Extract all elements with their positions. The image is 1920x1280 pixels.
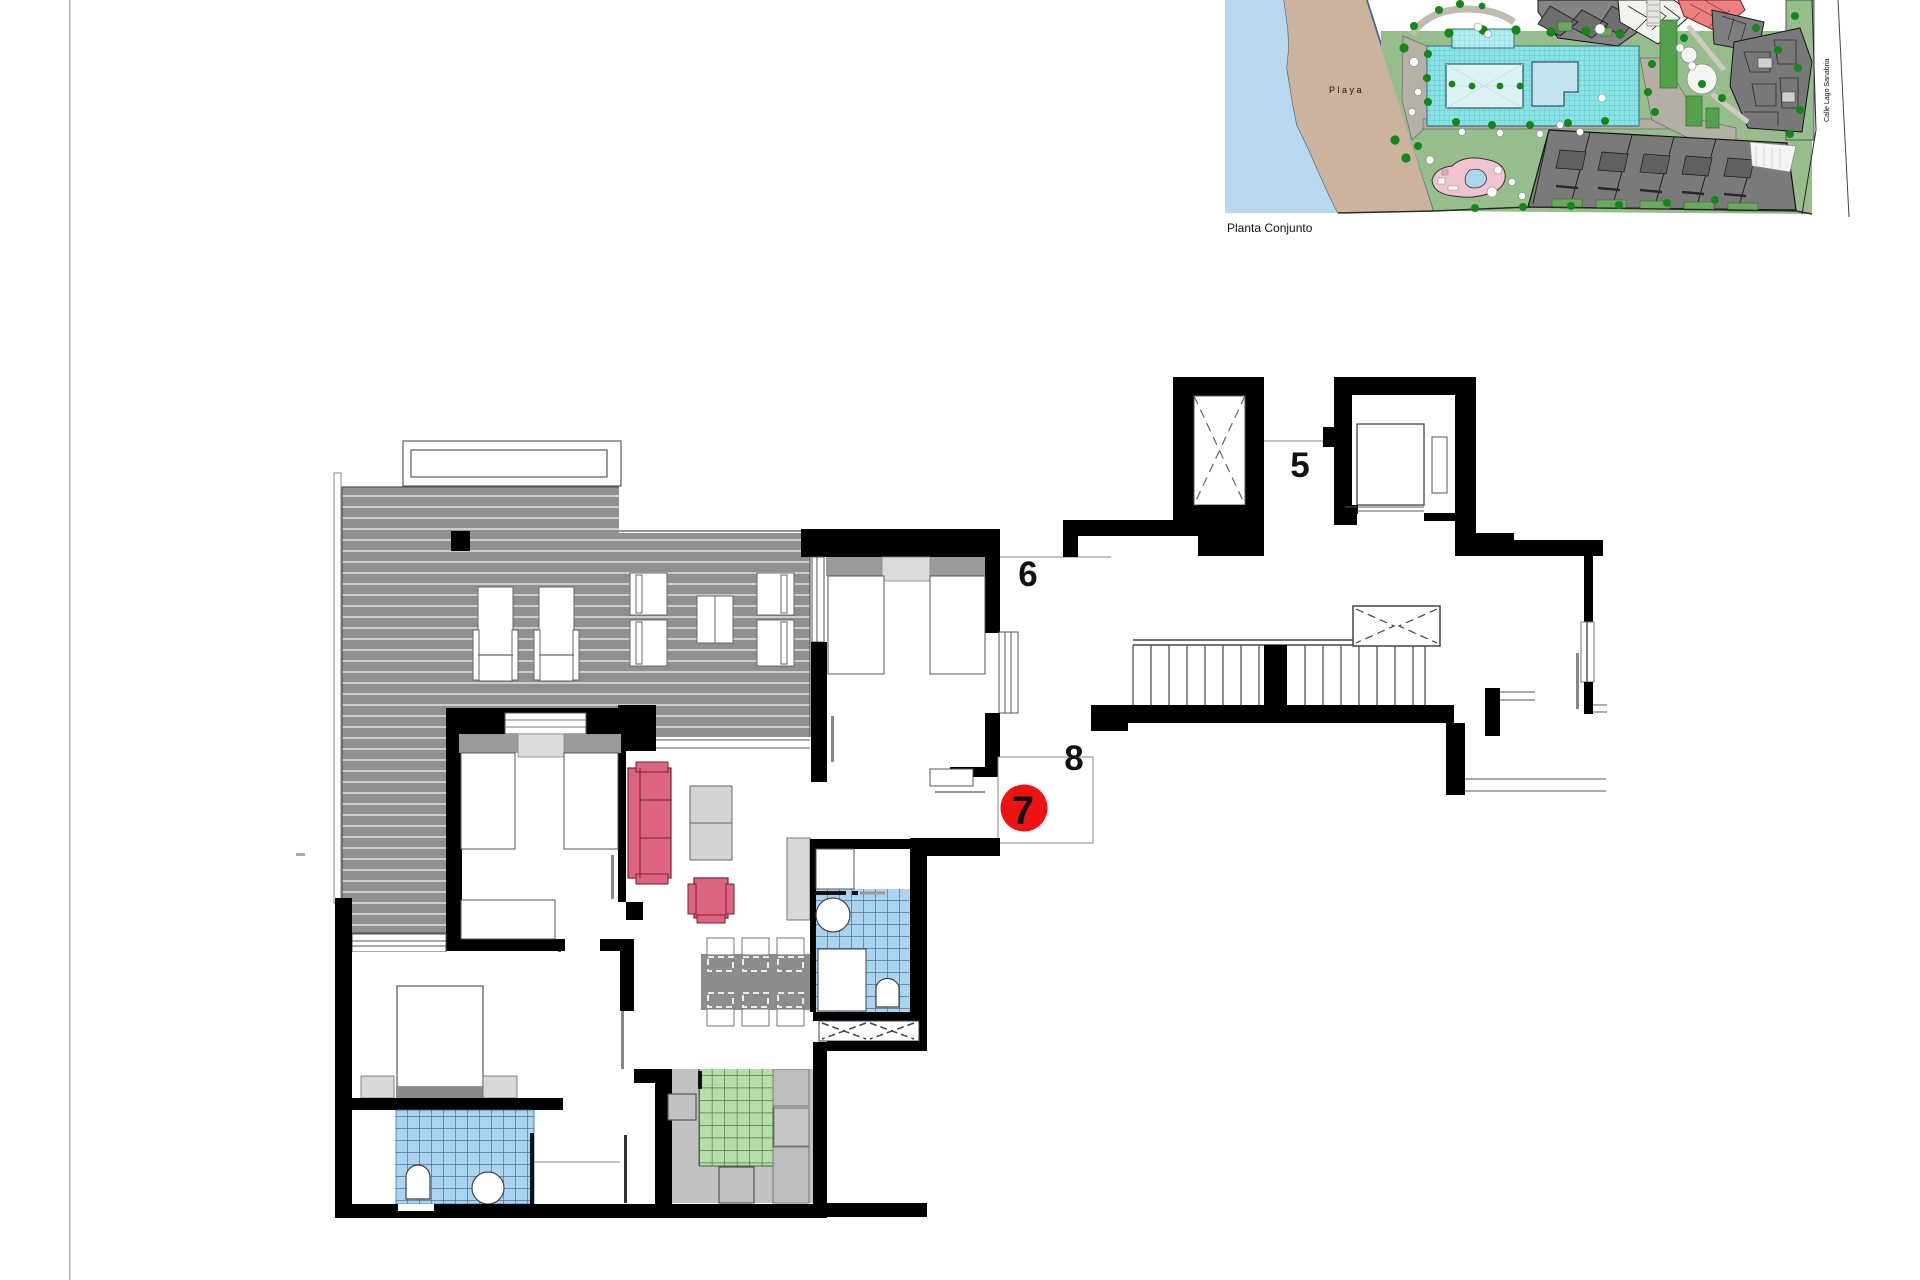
svg-text:Planta Conjunto: Planta Conjunto bbox=[1227, 221, 1313, 235]
svg-text:6: 6 bbox=[1018, 555, 1037, 594]
svg-text:5: 5 bbox=[1290, 446, 1309, 485]
svg-text:8: 8 bbox=[1064, 739, 1083, 778]
svg-text:Playa: Playa bbox=[1329, 85, 1364, 95]
svg-text:7: 7 bbox=[1012, 789, 1034, 833]
svg-text:Calle Lago Sanabria: Calle Lago Sanabria bbox=[1824, 58, 1831, 122]
